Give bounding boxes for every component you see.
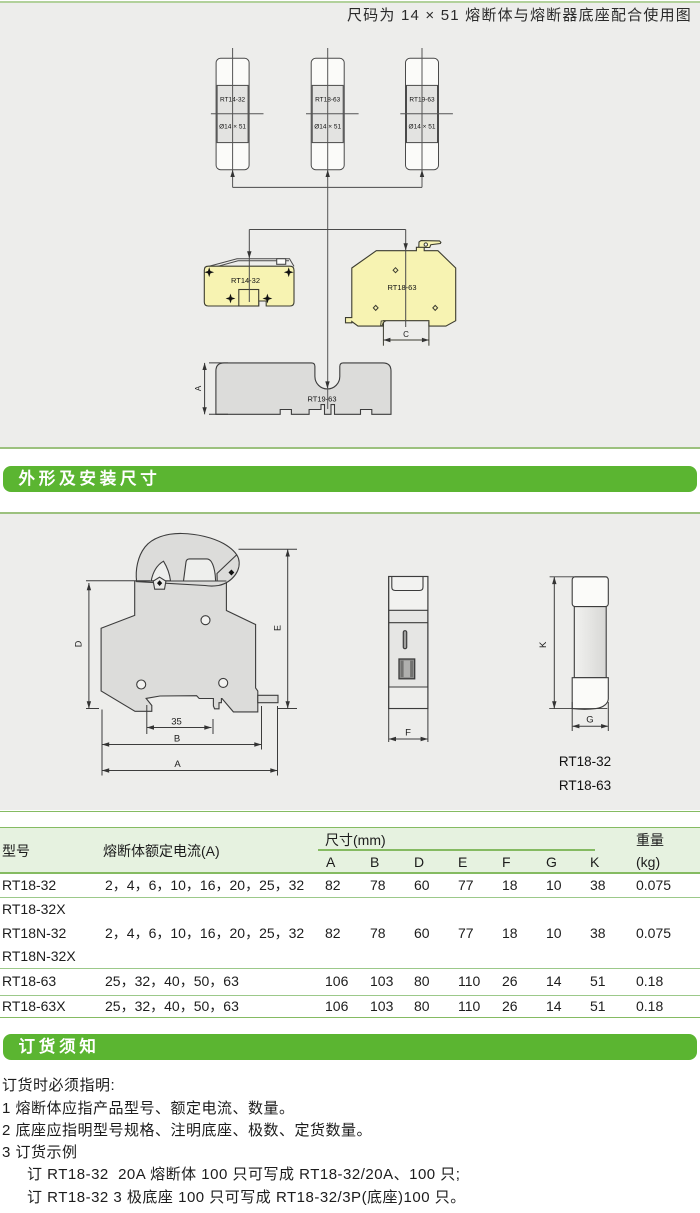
svg-text:A: A	[194, 385, 203, 391]
svg-text:K: K	[538, 641, 549, 648]
svg-text:A: A	[174, 759, 181, 770]
svg-text:C: C	[403, 330, 409, 339]
svg-text:35: 35	[171, 717, 182, 728]
svg-text:RT14-32: RT14-32	[231, 276, 260, 285]
svg-text:RT19-63: RT19-63	[307, 395, 336, 404]
svg-text:RT18-63: RT18-63	[387, 283, 416, 292]
svg-text:RT18-63: RT18-63	[559, 778, 611, 793]
svg-text:E: E	[273, 625, 283, 631]
svg-text:D: D	[74, 640, 84, 647]
svg-text:RT18-32: RT18-32	[559, 754, 611, 769]
svg-text:F: F	[405, 728, 411, 739]
svg-text:G: G	[586, 715, 593, 726]
svg-text:B: B	[174, 734, 180, 745]
